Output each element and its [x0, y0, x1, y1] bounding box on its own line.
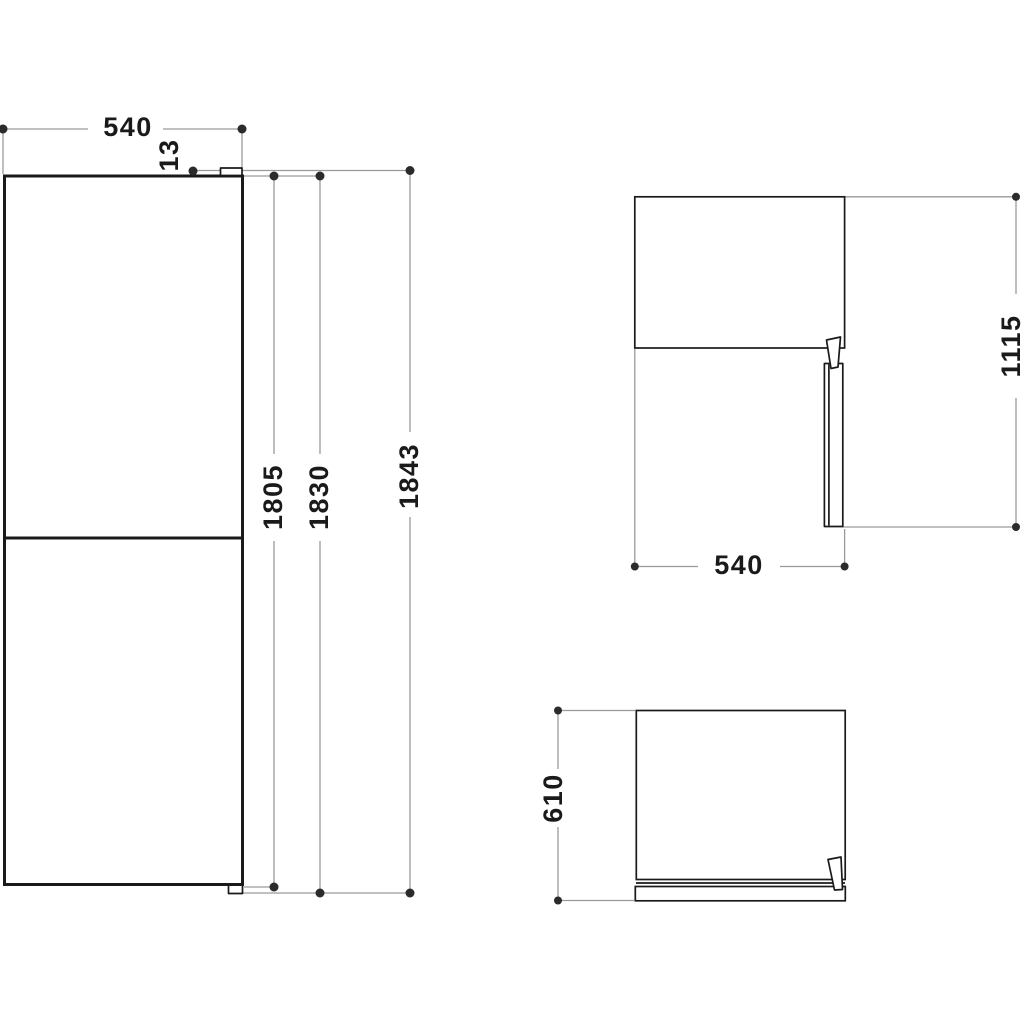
hinge-wedge	[828, 857, 843, 890]
door-panel	[635, 887, 845, 901]
label-front-height-max: 1843	[394, 443, 424, 509]
dimension-drawing: 540 13 1805 1830 1843	[0, 0, 1024, 1024]
front-view-markers	[0, 125, 415, 898]
top-view-dimension-lines	[558, 711, 635, 901]
marker-dot	[1012, 523, 1020, 531]
marker-dot	[841, 563, 849, 571]
side-view: 1115 540	[631, 193, 1024, 580]
marker-dot	[316, 889, 325, 898]
label-front-width: 540	[103, 112, 153, 142]
marker-dot	[631, 563, 639, 571]
label-front-height-mid: 1830	[304, 464, 334, 530]
marker-dot	[406, 166, 415, 175]
label-front-hinge-height: 13	[154, 138, 184, 171]
drawing-svg: 540 13 1805 1830 1843	[0, 0, 1024, 1024]
top-hinge	[221, 168, 243, 176]
marker-dot	[270, 172, 279, 181]
marker-dot	[554, 897, 562, 905]
label-side-depth: 540	[714, 550, 764, 580]
top-view: 610	[538, 707, 845, 905]
cabinet-outline	[635, 197, 845, 348]
cabinet-outline	[636, 711, 845, 880]
marker-dot	[316, 172, 325, 181]
cabinet-outline	[5, 176, 243, 885]
marker-dot	[238, 125, 247, 134]
front-view: 540 13 1805 1830 1843	[0, 112, 424, 898]
label-front-height-min: 1805	[258, 464, 288, 530]
marker-dot	[270, 883, 279, 892]
marker-dot	[0, 125, 8, 134]
front-view-dimension-lines	[3, 129, 410, 893]
marker-dot	[554, 707, 562, 715]
door-panel	[824, 364, 842, 527]
label-side-height: 1115	[996, 314, 1024, 377]
marker-dot	[406, 889, 415, 898]
label-top-depth: 610	[538, 773, 568, 823]
marker-dot	[189, 167, 198, 176]
marker-dot	[1012, 193, 1020, 201]
